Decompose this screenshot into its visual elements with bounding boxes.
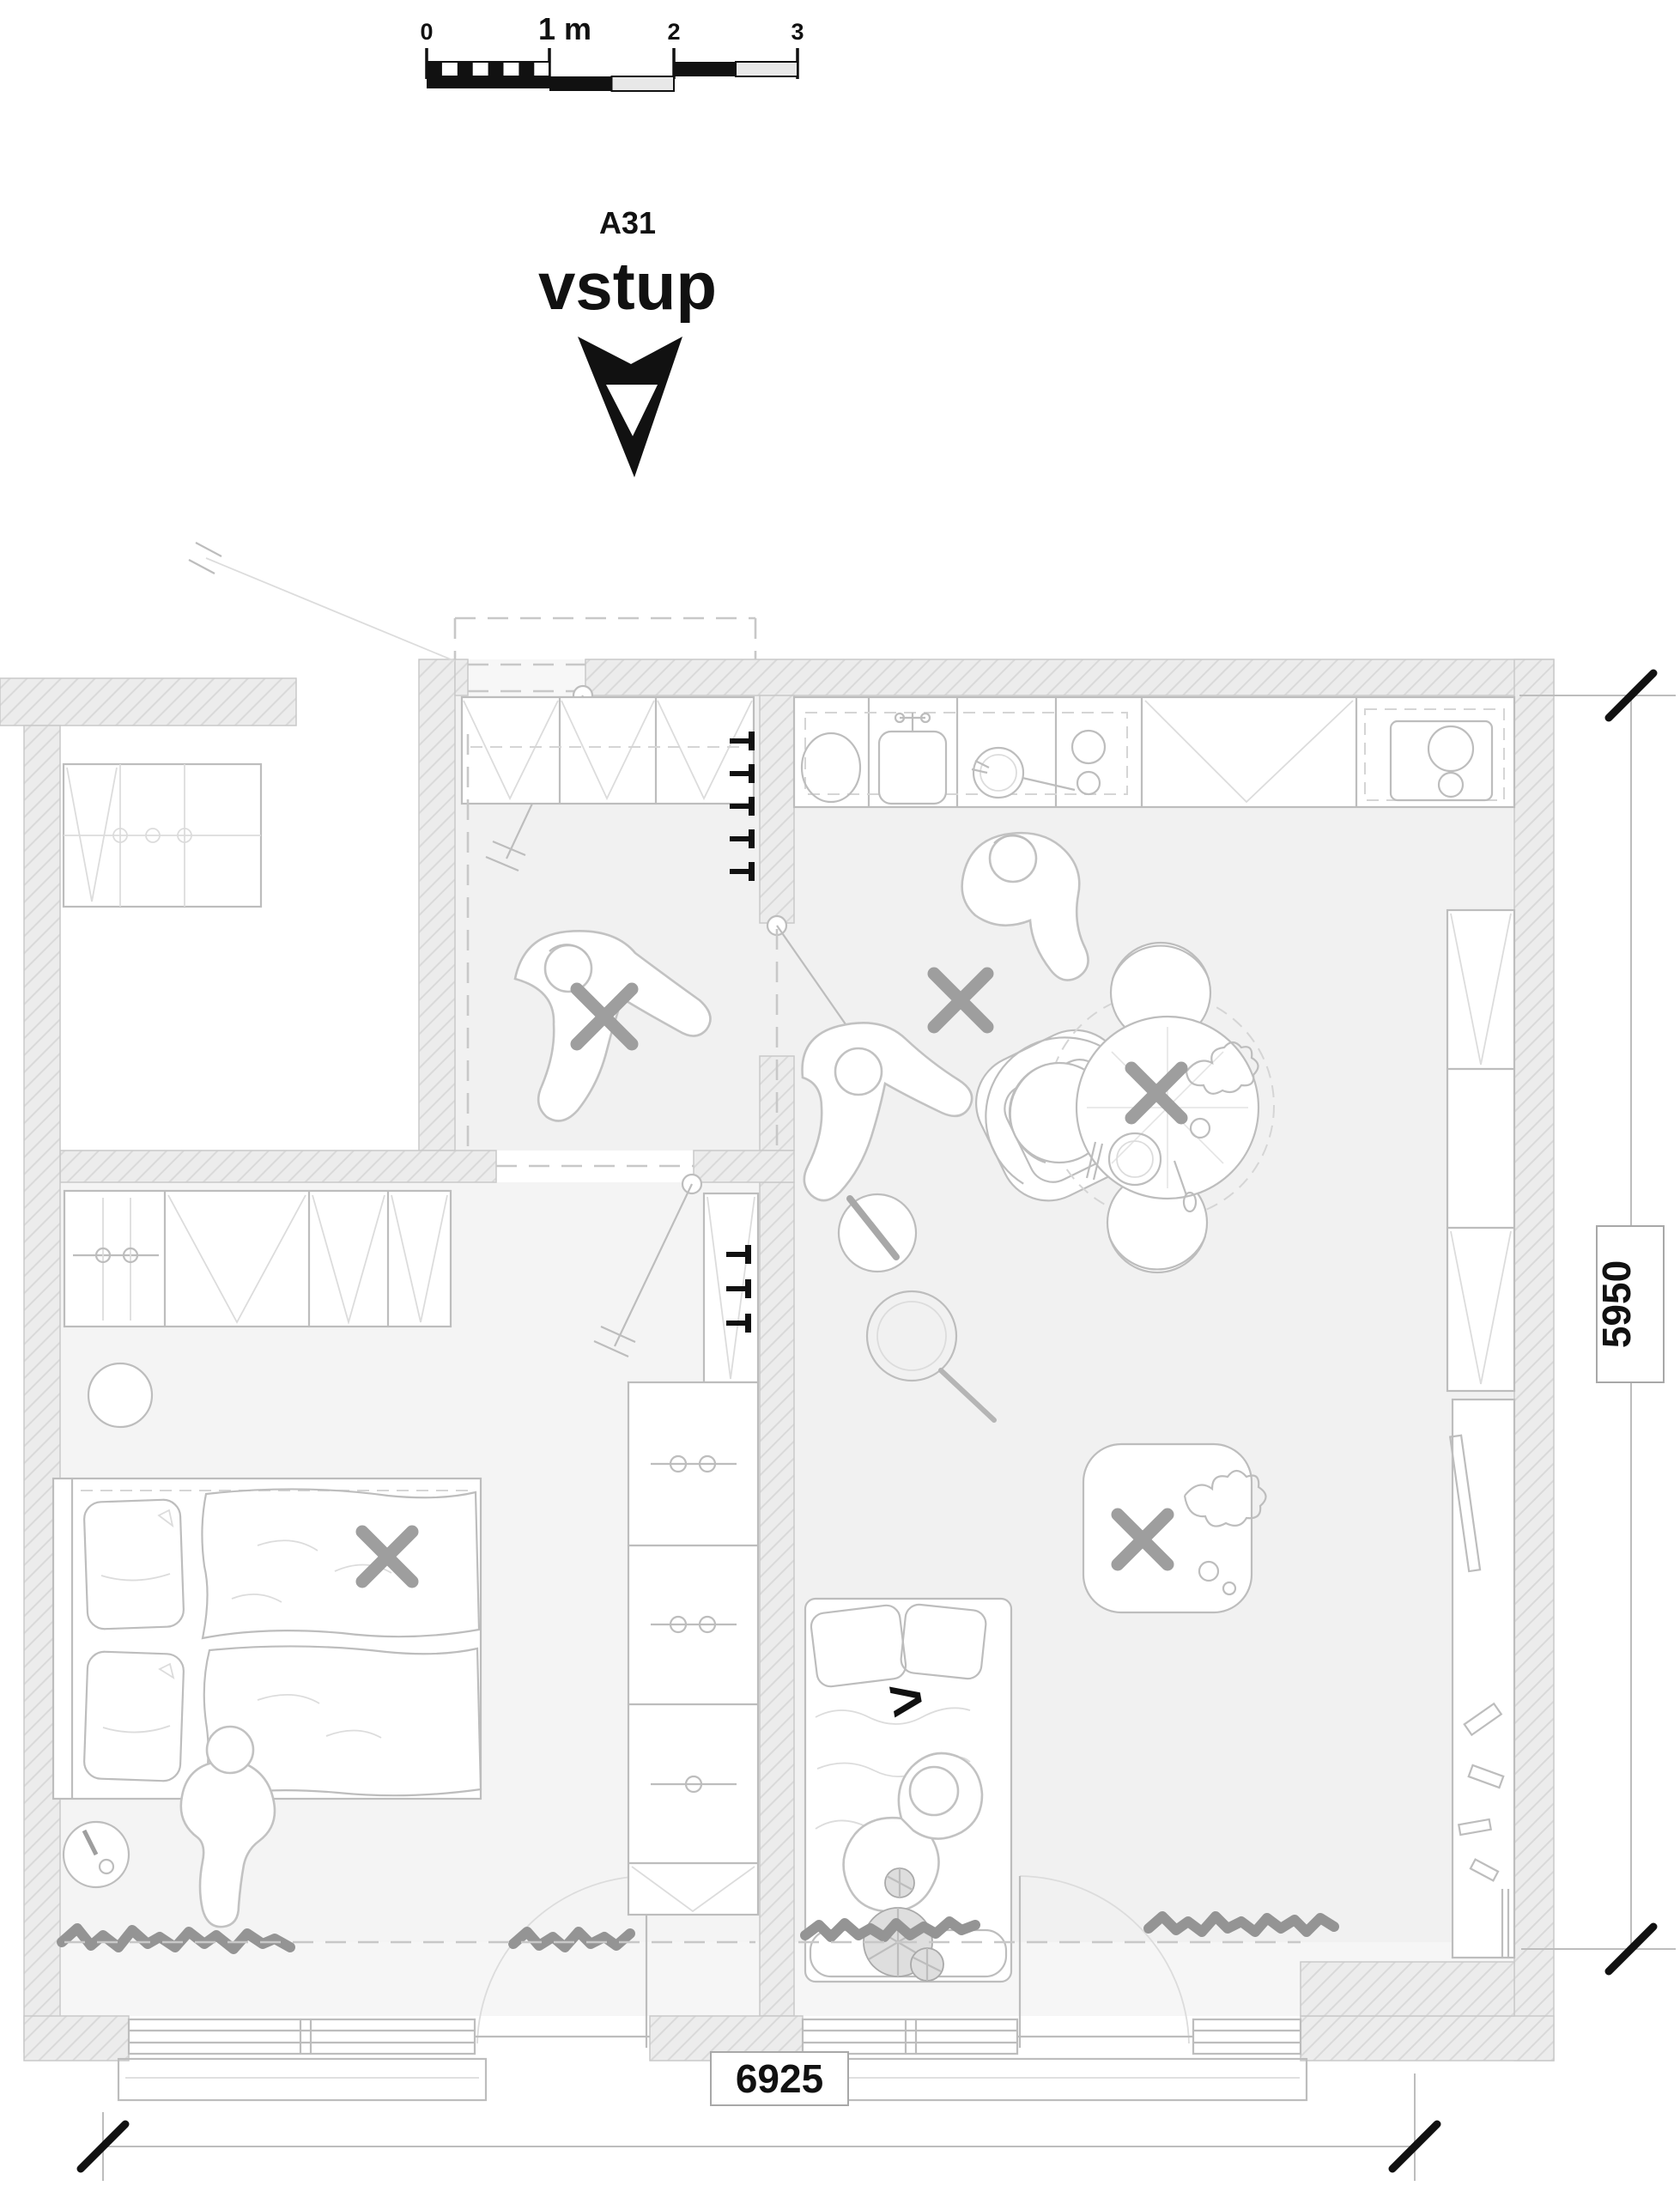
- bedroom-north-wall: [60, 1151, 496, 1182]
- scale-bar: 0 1 m 2 3: [420, 11, 804, 91]
- entrance-annotation: A31 vstup: [538, 205, 717, 477]
- coffee-side-table: [1083, 1444, 1266, 1612]
- dim-width-value: 6925: [736, 2056, 823, 2101]
- east-wall: [1514, 659, 1554, 2061]
- exterior-wall-band: [0, 678, 296, 726]
- scale-label-3: 3: [791, 19, 804, 45]
- living-window-left: [803, 2019, 1017, 2054]
- bedroom-wardrobe: [64, 1191, 451, 1327]
- side-lamp-table: [839, 1194, 916, 1272]
- neighbor-storage-outline: [64, 764, 261, 907]
- unit-code: A31: [599, 205, 656, 240]
- dim-height-value: 5950: [1594, 1260, 1639, 1348]
- hall-entry-closet: [462, 697, 754, 804]
- scale-label-0: 0: [420, 19, 433, 45]
- scale-label-2: 2: [667, 19, 680, 45]
- scale-segments: [427, 62, 798, 91]
- plant-icon: [911, 1948, 943, 1981]
- hall-divider-wall-upper: [760, 695, 794, 923]
- south-wall-c: [1301, 2016, 1554, 2061]
- living-window-sill: [794, 2059, 1307, 2100]
- entrance-pier: [455, 659, 468, 695]
- plant-icon: [885, 1868, 914, 1897]
- entrance-arrow-icon: [578, 337, 682, 477]
- floor-plan-canvas: 0 1 m 2 3 A31 vstup: [0, 0, 1680, 2198]
- bedroom-floor-strip: [60, 1942, 760, 2016]
- hall-west-wall: [419, 659, 455, 1151]
- living-window-right: [1193, 2019, 1301, 2054]
- east-closet-column: [1447, 910, 1514, 1391]
- bedroom-living-wall: [760, 1182, 794, 2016]
- floor-plan-page: 0 1 m 2 3 A31 vstup: [0, 0, 1680, 2198]
- stool: [88, 1363, 152, 1427]
- scale-label-1m: 1 m: [538, 11, 591, 46]
- entrance-label: vstup: [538, 248, 717, 324]
- south-east-corner-pier: [1301, 1962, 1514, 2016]
- canopy-dashed-outline: [455, 618, 755, 659]
- south-wall-a: [24, 2016, 129, 2061]
- bedroom-window-sill: [118, 2059, 486, 2100]
- west-wall: [24, 726, 60, 2052]
- wall-clock: [64, 1822, 129, 1887]
- dimension-bottom: 6925: [81, 2052, 1437, 2181]
- north-wall: [585, 659, 1554, 695]
- bedroom-window: [129, 2019, 475, 2054]
- desk-strip: [1450, 1400, 1514, 1958]
- bedroom-north-wall-east: [694, 1151, 794, 1182]
